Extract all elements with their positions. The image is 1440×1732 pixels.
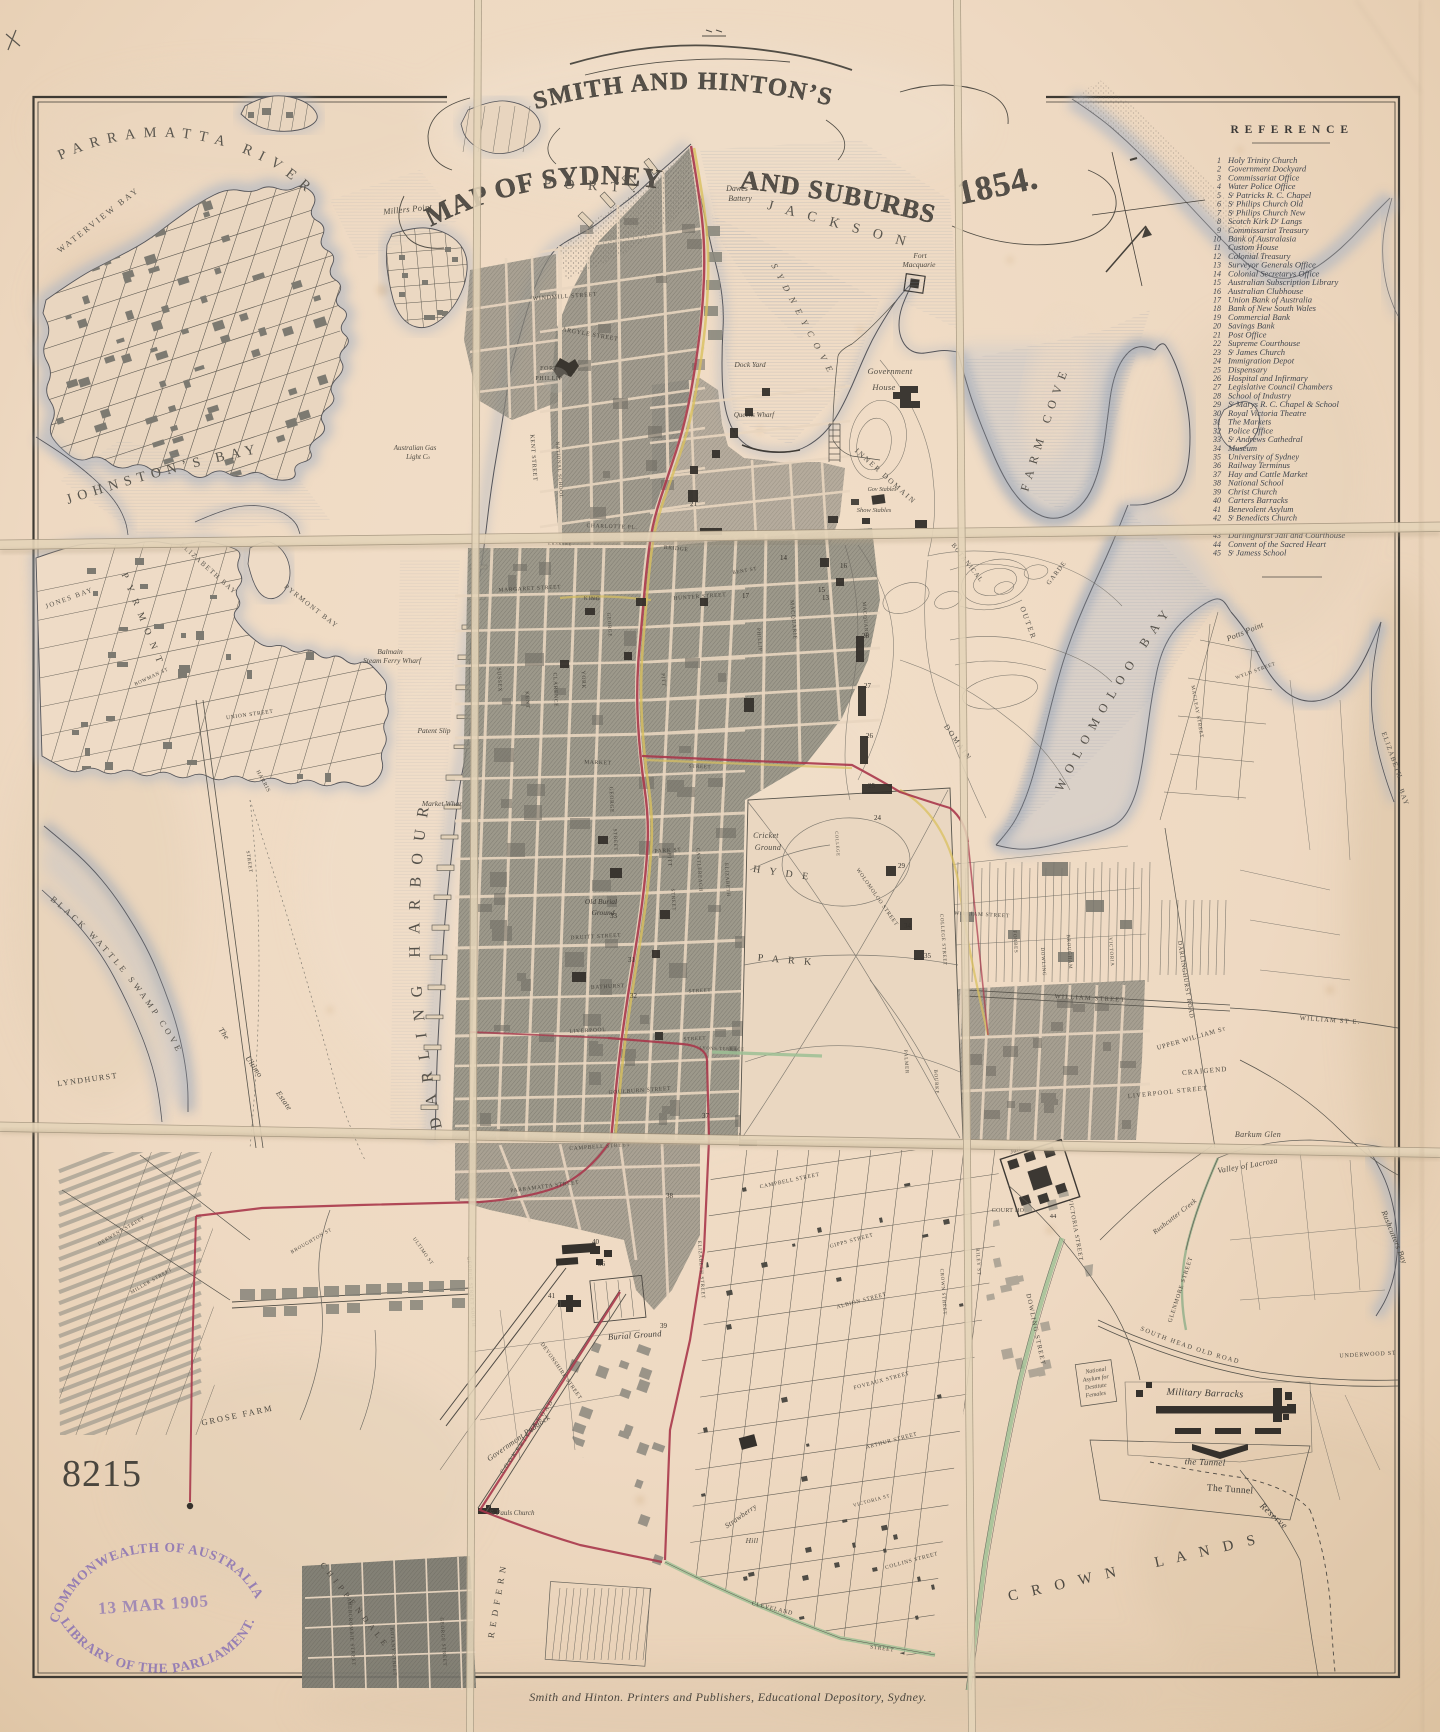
svg-text:15: 15	[818, 586, 826, 594]
svg-text:28: 28	[1213, 391, 1221, 400]
svg-text:KING: KING	[584, 596, 601, 603]
svg-text:Battery: Battery	[728, 194, 752, 203]
svg-text:Government: Government	[867, 366, 912, 376]
svg-text:25: 25	[1213, 365, 1221, 374]
svg-text:PITT: PITT	[660, 673, 666, 687]
svg-text:8215: 8215	[62, 1453, 142, 1495]
svg-text:Barkum Glen: Barkum Glen	[1235, 1130, 1281, 1139]
svg-text:STREET: STREET	[689, 765, 712, 771]
svg-text:Light Co: Light Co	[405, 453, 430, 461]
svg-text:Dock Yard: Dock Yard	[733, 360, 766, 369]
svg-text:17: 17	[1213, 296, 1222, 305]
svg-text:St Pauls Church: St Pauls Church	[489, 1509, 535, 1517]
svg-text:FORT: FORT	[540, 366, 558, 372]
svg-text:Fort: Fort	[912, 251, 927, 260]
svg-text:Show Stables: Show Stables	[857, 507, 892, 514]
svg-text:44: 44	[1213, 540, 1221, 549]
svg-text:35: 35	[1212, 453, 1221, 462]
svg-text:40: 40	[1213, 496, 1221, 505]
svg-text:PITT: PITT	[666, 853, 673, 868]
svg-text:Dawes: Dawes	[725, 184, 748, 193]
svg-text:Macquarie: Macquarie	[902, 260, 937, 269]
svg-text:41: 41	[1213, 505, 1221, 514]
svg-text:St Jamess School: St Jamess School	[1228, 548, 1287, 558]
svg-text:27: 27	[1213, 383, 1222, 392]
svg-text:44: 44	[1050, 1213, 1057, 1220]
svg-text:32: 32	[630, 992, 638, 1000]
svg-text:4: 4	[1217, 182, 1221, 191]
svg-text:40: 40	[592, 1238, 600, 1246]
svg-text:Balmain: Balmain	[377, 647, 403, 656]
svg-text:22: 22	[1213, 339, 1221, 348]
svg-text:St Benedicts Church: St Benedicts Church	[1228, 513, 1297, 523]
svg-text:14: 14	[1213, 269, 1221, 278]
svg-text:House: House	[871, 382, 895, 392]
svg-text:36: 36	[1212, 461, 1221, 470]
svg-text:41: 41	[548, 1292, 556, 1300]
svg-text:32: 32	[1212, 426, 1221, 435]
svg-text:17: 17	[742, 592, 750, 600]
svg-text:5: 5	[1217, 191, 1221, 200]
svg-text:14: 14	[780, 554, 788, 562]
svg-text:16: 16	[1213, 287, 1221, 296]
svg-text:CLARENCE: CLARENCE	[551, 673, 558, 708]
svg-text:23: 23	[1213, 348, 1221, 357]
svg-text:11: 11	[1214, 243, 1221, 252]
svg-text:Australian Gas: Australian Gas	[393, 444, 437, 452]
svg-text:33: 33	[1212, 435, 1221, 444]
svg-text:26: 26	[1213, 374, 1221, 383]
svg-text:STREET: STREET	[612, 829, 618, 852]
svg-text:24: 24	[874, 814, 882, 822]
svg-text:36: 36	[598, 1260, 606, 1268]
svg-text:R E F E R E N C E: R E F E R E N C E	[1231, 124, 1350, 136]
svg-text:30: 30	[1212, 409, 1221, 418]
svg-text:2: 2	[1217, 165, 1221, 174]
svg-text:24: 24	[1213, 357, 1221, 366]
svg-text:29: 29	[898, 862, 906, 870]
svg-text:37: 37	[702, 1112, 710, 1120]
svg-text:16: 16	[840, 562, 848, 570]
svg-text:18: 18	[1213, 304, 1221, 313]
svg-text:31: 31	[1212, 418, 1221, 427]
svg-text:Steam Ferry Wharf: Steam Ferry Wharf	[363, 656, 422, 665]
svg-text:3: 3	[1216, 173, 1221, 182]
svg-text:COURT HO: COURT HO	[992, 1208, 1025, 1214]
svg-text:29: 29	[1213, 400, 1221, 409]
svg-text:13: 13	[1213, 261, 1221, 270]
svg-text:Queens Wharf: Queens Wharf	[734, 411, 775, 419]
svg-text:1: 1	[1217, 156, 1221, 165]
svg-text:Smith and Hinton. Printers and: Smith and Hinton. Printers and Publisher…	[529, 1690, 927, 1704]
svg-text:37: 37	[1212, 470, 1222, 479]
svg-text:35: 35	[924, 952, 932, 960]
svg-text:13: 13	[822, 594, 830, 602]
svg-text:9: 9	[1217, 226, 1221, 235]
svg-text:39: 39	[660, 1322, 668, 1330]
svg-text:10: 10	[1213, 235, 1221, 244]
svg-text:39: 39	[1212, 487, 1221, 496]
svg-text:Cricket: Cricket	[753, 831, 779, 840]
svg-text:8: 8	[1217, 217, 1221, 226]
svg-text:Patent Slip: Patent Slip	[416, 726, 450, 735]
svg-text:15: 15	[1213, 278, 1221, 287]
svg-text:GEORGE: GEORGE	[608, 787, 615, 814]
svg-text:Hill: Hill	[745, 1536, 759, 1545]
svg-text:21: 21	[1213, 330, 1221, 339]
svg-text:6: 6	[1217, 200, 1221, 209]
svg-text:the Tunnel: the Tunnel	[1185, 1456, 1226, 1467]
svg-text:34: 34	[1212, 444, 1221, 453]
svg-text:Ground: Ground	[755, 843, 782, 852]
svg-text:YORK: YORK	[580, 671, 587, 690]
svg-text:PHILLIP: PHILLIP	[535, 376, 562, 382]
svg-text:20: 20	[1213, 322, 1221, 331]
svg-text:Old Burial: Old Burial	[585, 897, 617, 906]
svg-text:KENT: KENT	[524, 691, 531, 709]
svg-text:33: 33	[610, 912, 618, 920]
svg-text:45: 45	[1213, 549, 1221, 558]
svg-text:31: 31	[628, 956, 636, 964]
svg-text:38: 38	[666, 1192, 674, 1200]
svg-text:12: 12	[1213, 252, 1221, 261]
svg-text:MARKET: MARKET	[584, 760, 612, 767]
svg-text:Gov Stables: Gov Stables	[868, 487, 897, 493]
svg-text:19: 19	[1213, 313, 1221, 322]
svg-text:38: 38	[1212, 479, 1221, 488]
svg-text:42: 42	[1213, 514, 1221, 523]
